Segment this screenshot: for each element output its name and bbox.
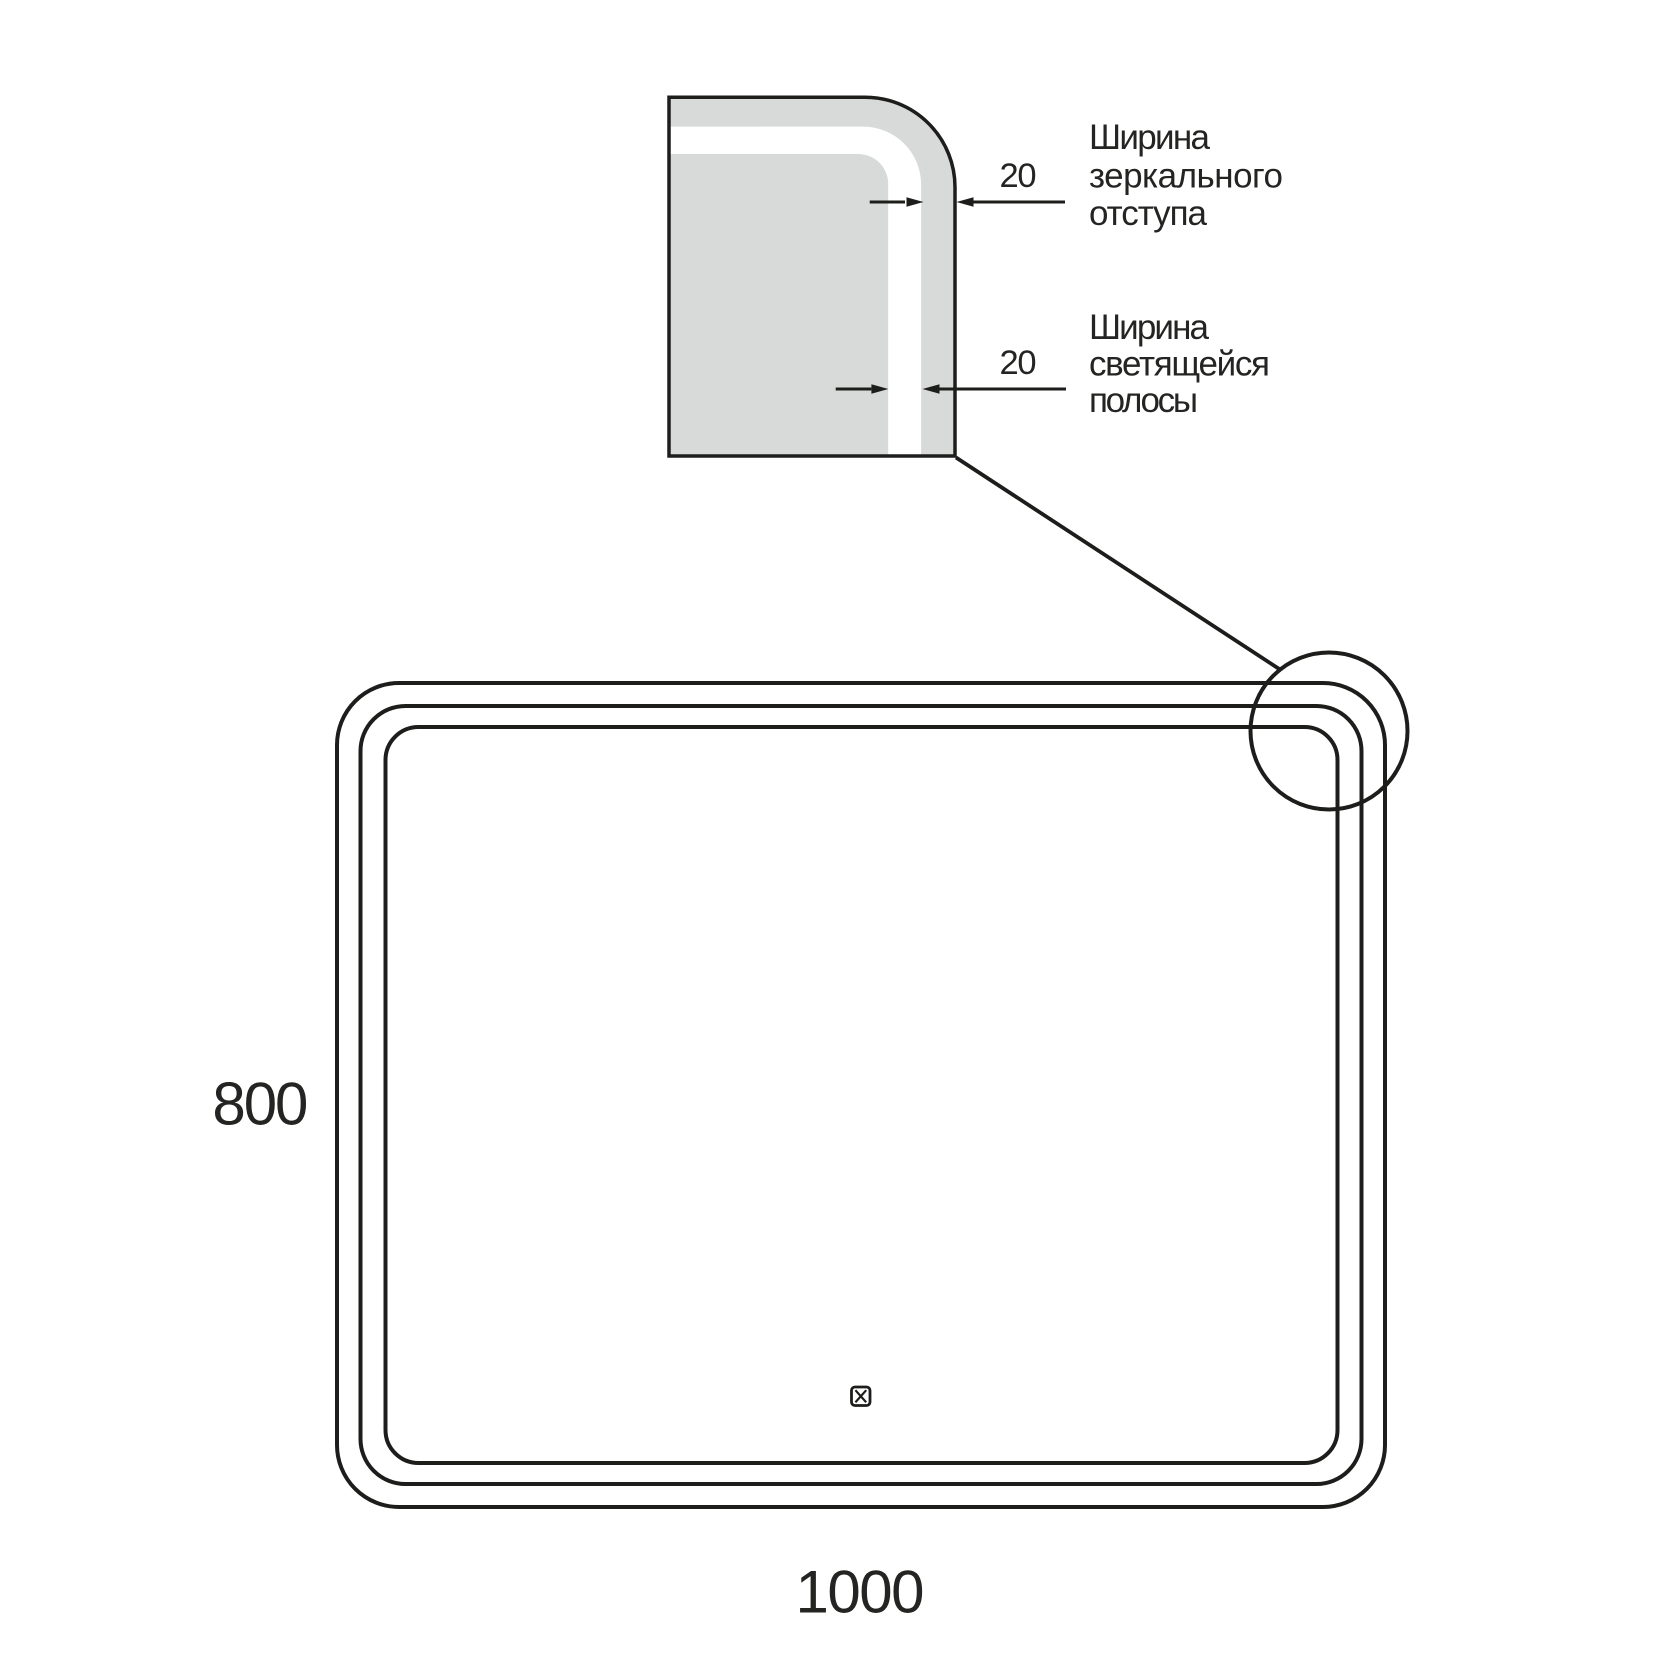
svg-text:20: 20 <box>1000 344 1037 382</box>
svg-text:полосы: полосы <box>1089 381 1198 420</box>
svg-text:800: 800 <box>212 1070 308 1137</box>
svg-text:Ширина: Ширина <box>1089 308 1210 347</box>
svg-text:светящейся: светящейся <box>1089 345 1270 384</box>
svg-text:20: 20 <box>1000 157 1037 195</box>
svg-text:Ширина: Ширина <box>1089 118 1211 157</box>
svg-text:1000: 1000 <box>796 1559 925 1626</box>
svg-text:зеркального: зеркального <box>1089 157 1283 196</box>
svg-text:отступа: отступа <box>1089 194 1208 233</box>
